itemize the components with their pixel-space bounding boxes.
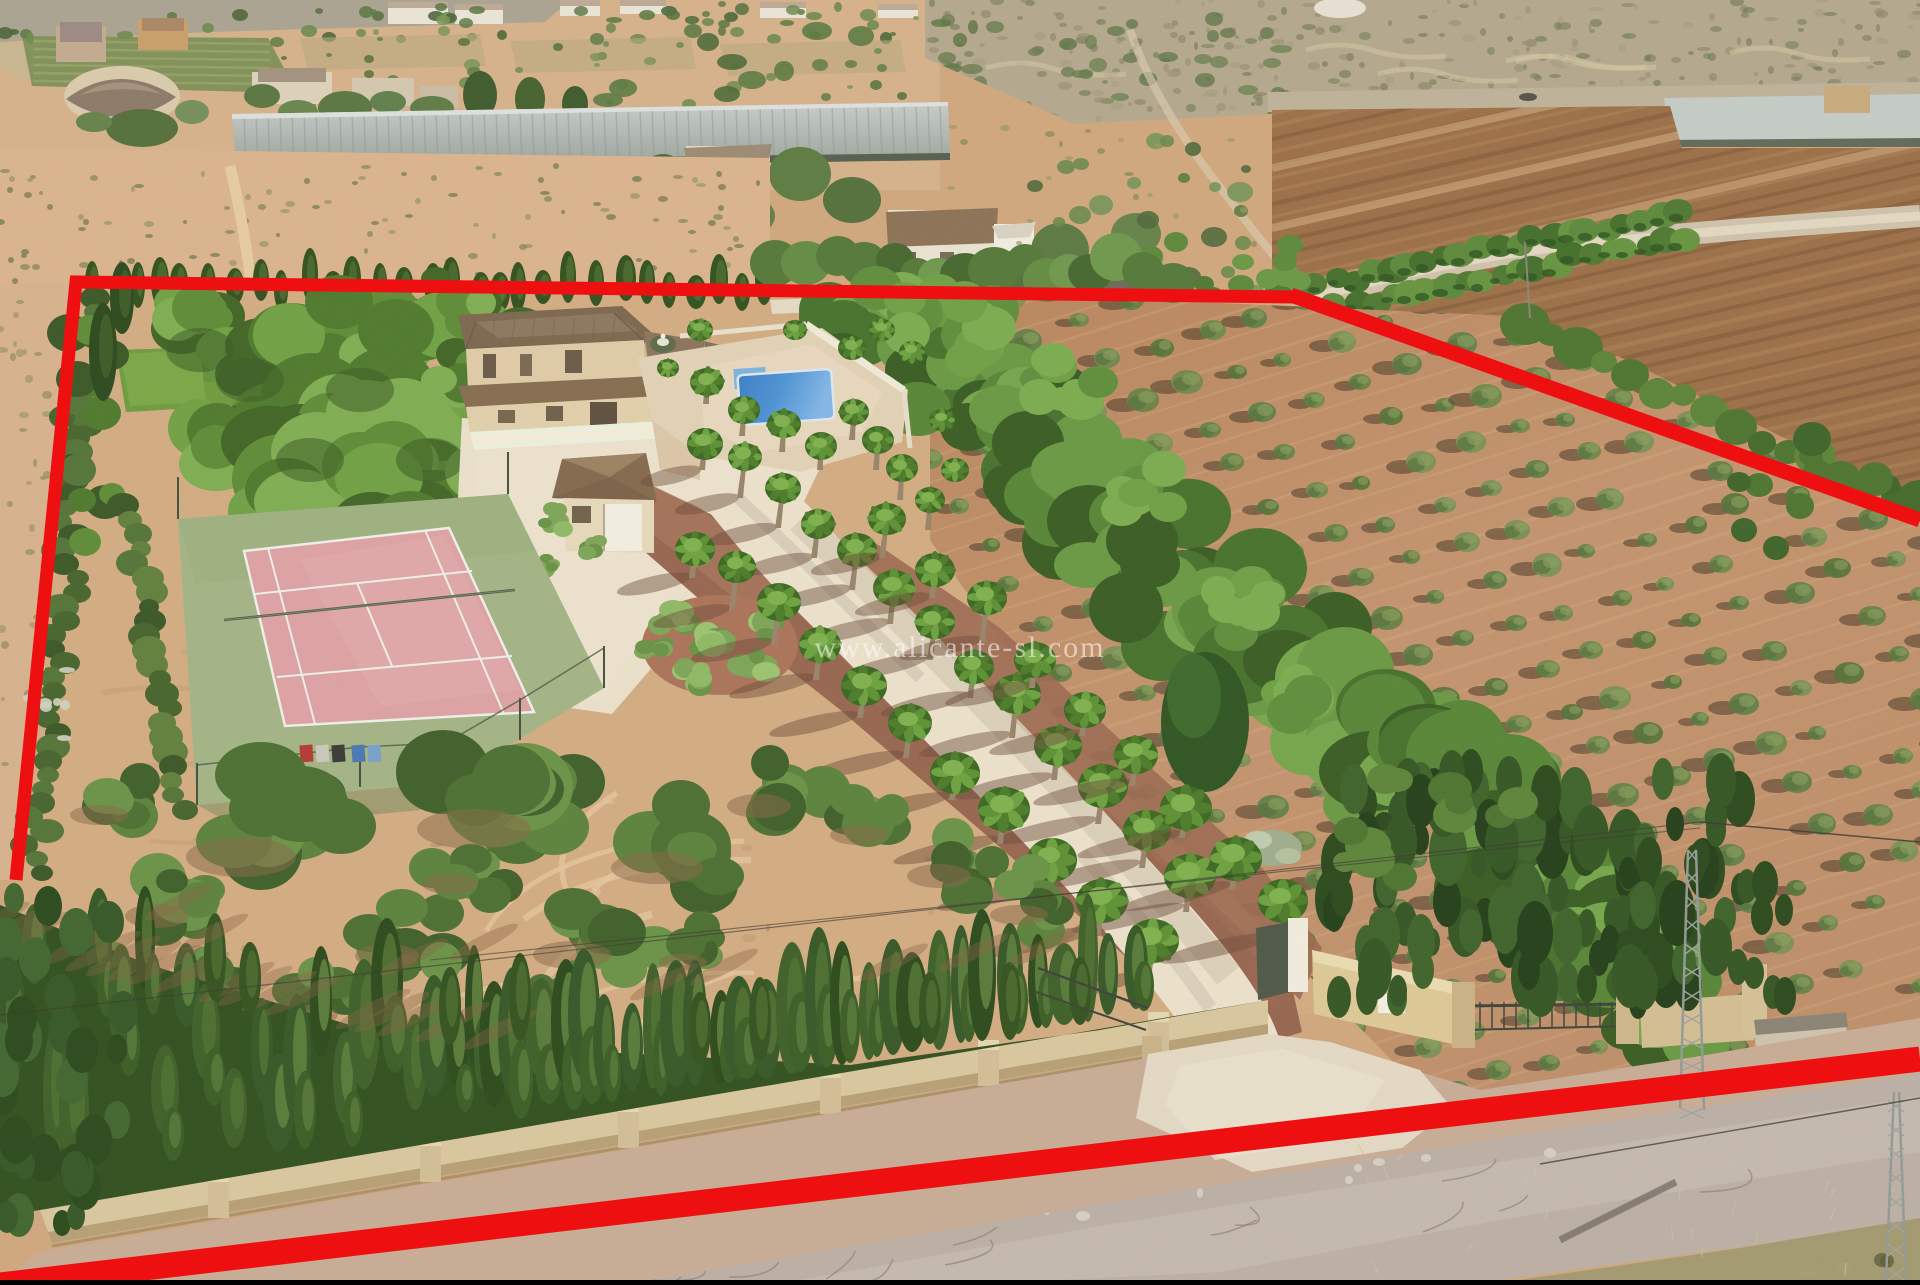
svg-text:www.alicante-sl.com: www.alicante-sl.com (815, 631, 1106, 664)
